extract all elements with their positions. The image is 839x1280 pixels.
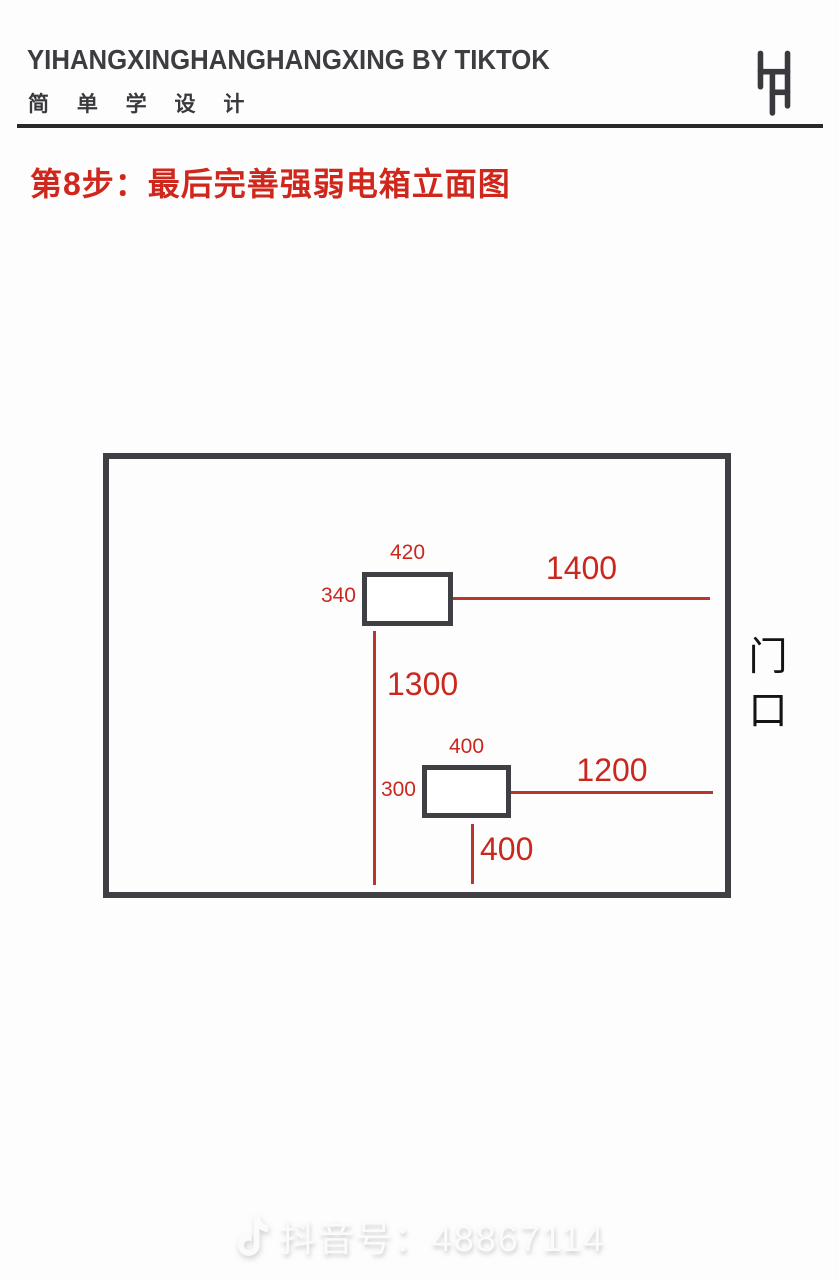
doorway-label: 门 口	[741, 638, 795, 731]
double-h-monogram-icon	[750, 47, 798, 117]
dim-box1-to-right-wall: 1400	[453, 550, 710, 587]
dim-line-1300	[373, 631, 376, 885]
dim-box2-width: 400	[422, 735, 511, 759]
brand-title: YIHANGXINGHANGHANGXING BY TIKTOK	[27, 44, 550, 76]
tiktok-id-text: 抖音号：48867114	[280, 1210, 606, 1262]
dim-box2-to-right-wall: 1200	[511, 752, 713, 789]
dim-line-1400	[453, 597, 710, 600]
tiktok-watermark: 抖音号：48867114	[0, 1206, 839, 1266]
brand-subtitle: 简 单 学 设 计	[28, 88, 255, 118]
dim-box1-width: 420	[362, 541, 453, 565]
step-title: 第8步：最后完善强弱电箱立面图	[30, 159, 511, 205]
doorway-char-top: 门	[748, 638, 787, 677]
doorway-char-bottom: 口	[748, 692, 787, 731]
weak-electric-box	[422, 765, 511, 818]
dim-box2-height: 300	[368, 778, 416, 802]
tiktok-note-icon	[234, 1215, 268, 1257]
dim-line-1200	[511, 791, 713, 794]
dim-line-400	[471, 824, 474, 884]
header-divider	[17, 124, 823, 128]
dim-box2-below: 400	[480, 831, 533, 868]
dim-box1-height: 340	[304, 584, 356, 608]
dim-between-boxes: 1300	[387, 666, 458, 703]
strong-electric-box	[362, 572, 453, 626]
